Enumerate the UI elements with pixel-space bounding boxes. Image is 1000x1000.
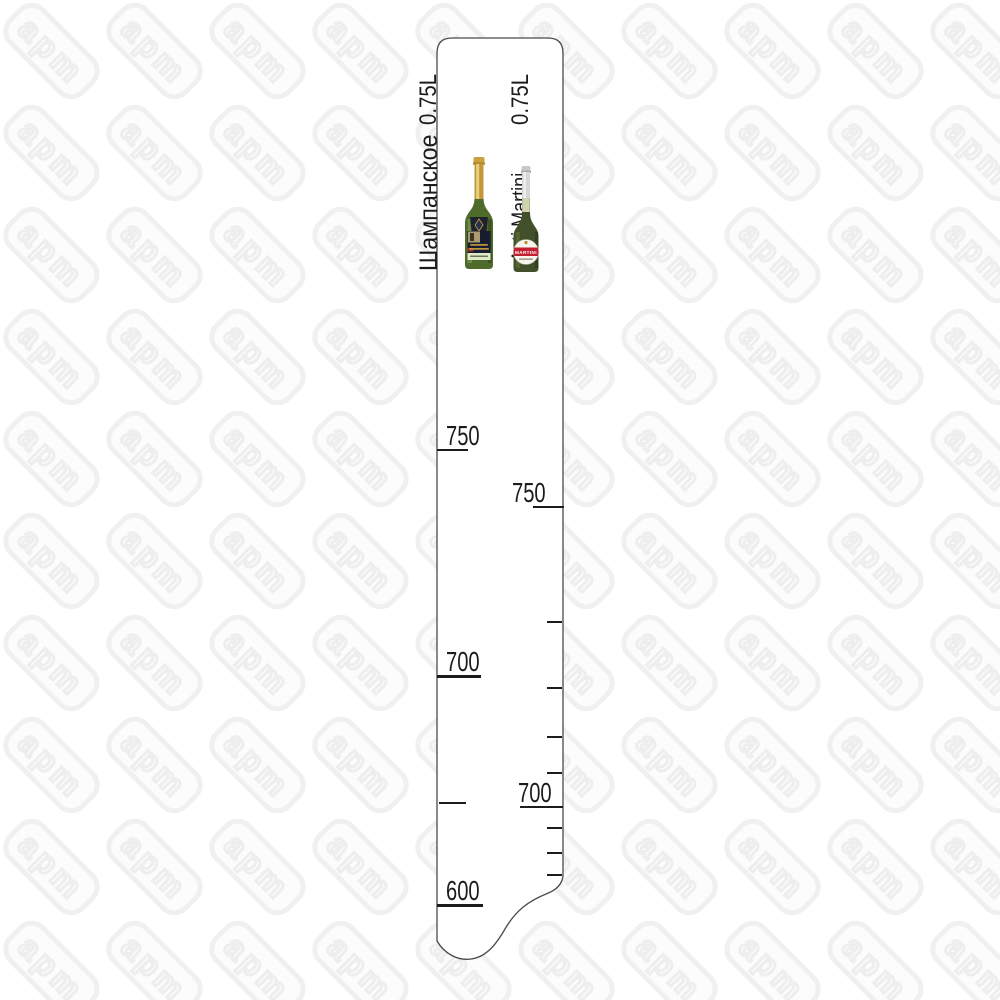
left-product-name: Шампанское [416,134,442,271]
right-product-volume: 0.75L [508,74,534,125]
right-scale-tick [547,687,562,689]
right-scale-tick [547,736,562,738]
right-scale-tick [547,852,562,854]
right-scale-tick [547,621,562,623]
right-scale-tick [547,827,562,829]
ruler-shape [0,0,1000,1000]
right-scale-tick [547,772,562,774]
left-scale-tick-label: 600 [446,879,480,903]
right-scale-tick-label: 700 [518,781,552,805]
left-scale-tick-label: 700 [446,650,480,674]
champagne-bottle-image [461,155,497,271]
left-scale-tick [439,802,466,804]
product-photo: apm Шампанское 0.75L Asti Martini 0.75L [0,0,1000,1000]
left-scale-tick-label: 750 [446,424,480,448]
right-scale-tick-label: 750 [512,481,546,505]
asti-martini-bottle-image: MARTINI [507,164,543,274]
right-scale-tick [547,874,562,876]
left-product-volume: 0.75L [416,74,442,125]
martini-label-text: MARTINI [515,250,537,255]
